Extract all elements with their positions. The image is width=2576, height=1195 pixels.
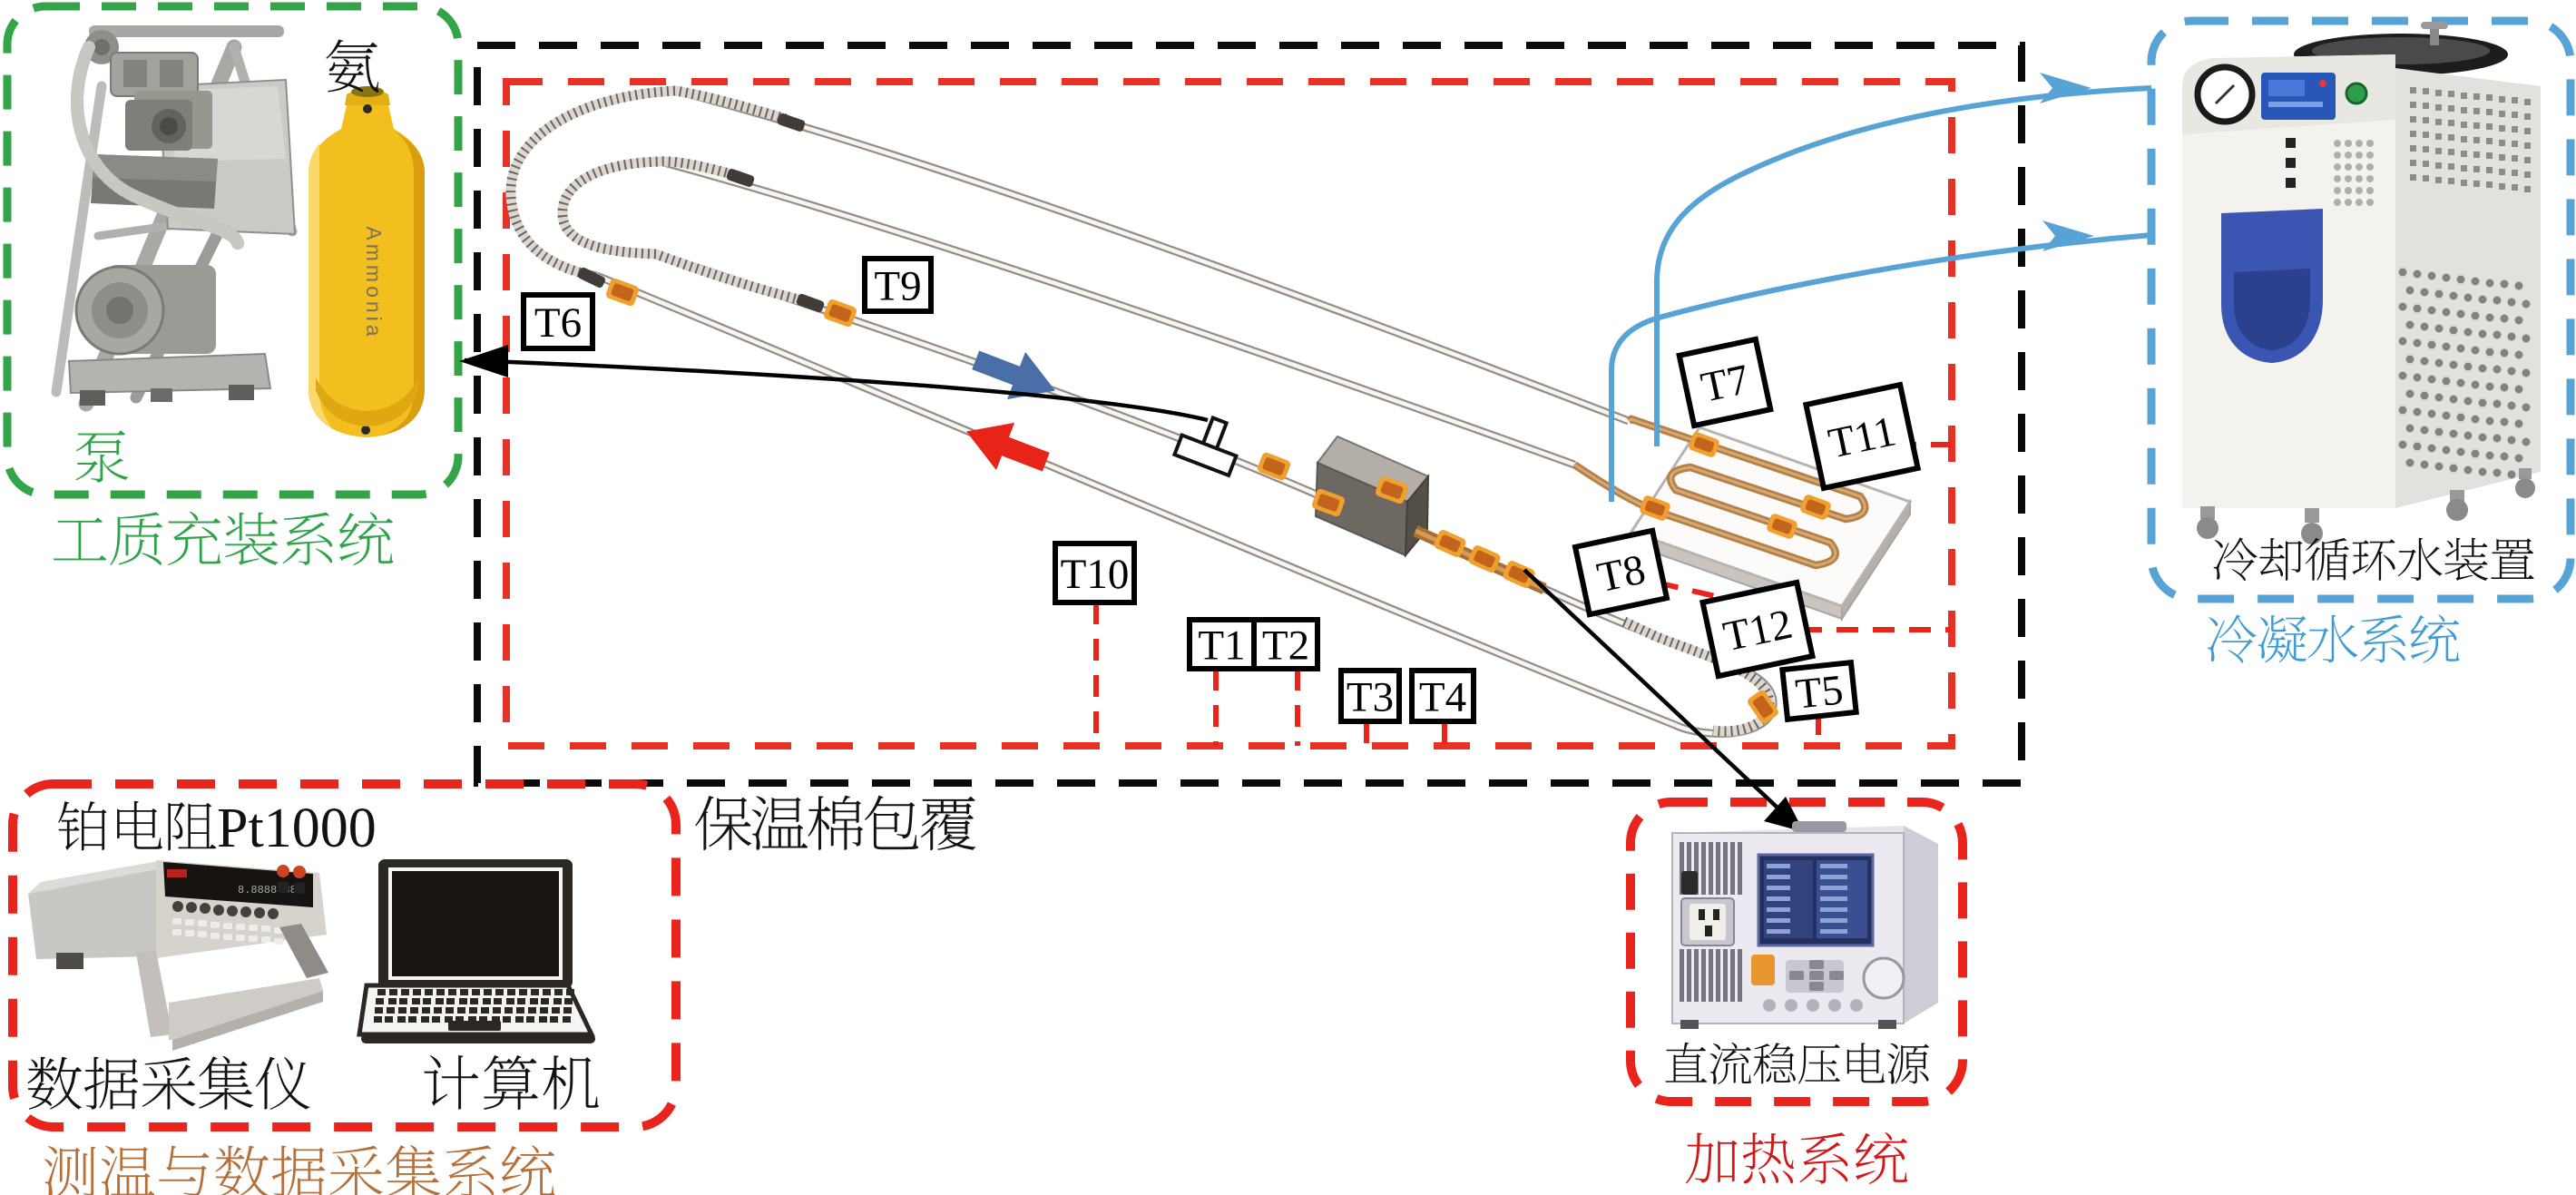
svg-text:T3: T3 (1347, 673, 1394, 720)
svg-text:Ammonia: Ammonia (362, 226, 386, 339)
svg-text:Pt1000: Pt1000 (217, 798, 377, 859)
svg-text:T4: T4 (1419, 673, 1466, 720)
svg-text:T6: T6 (534, 299, 582, 347)
svg-text:T8: T8 (1593, 546, 1650, 602)
svg-text:T7: T7 (1697, 356, 1753, 412)
svg-text:T1: T1 (1198, 622, 1245, 669)
svg-text:T10: T10 (1061, 551, 1130, 598)
svg-text:T9: T9 (874, 262, 921, 309)
svg-text:T5: T5 (1793, 666, 1845, 718)
svg-text:T2: T2 (1262, 622, 1309, 669)
